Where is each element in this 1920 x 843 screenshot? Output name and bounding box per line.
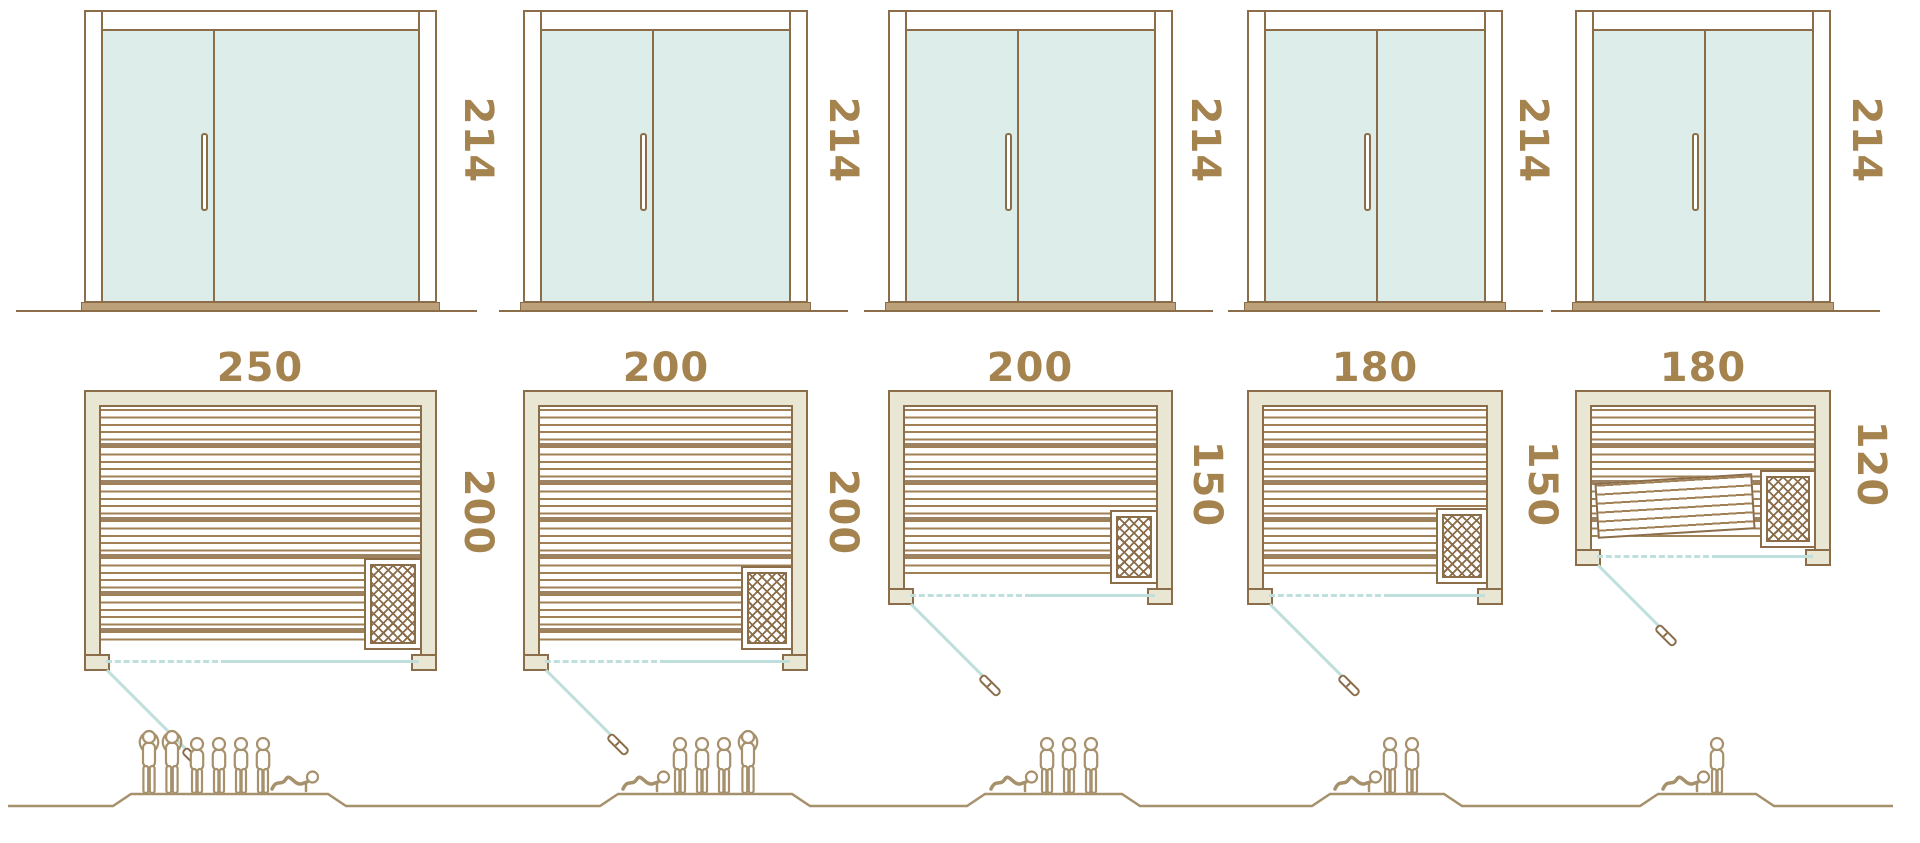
ground-line bbox=[8, 794, 1893, 806]
capacity-illustration bbox=[0, 0, 1920, 843]
people-group-5 bbox=[1663, 738, 1723, 793]
people-group-3 bbox=[991, 738, 1097, 793]
people-group-4 bbox=[1335, 738, 1418, 793]
people-group-2 bbox=[623, 731, 757, 793]
sauna-size-diagram: 214 214 214 214 bbox=[0, 0, 1920, 843]
people-group-1 bbox=[140, 731, 318, 793]
